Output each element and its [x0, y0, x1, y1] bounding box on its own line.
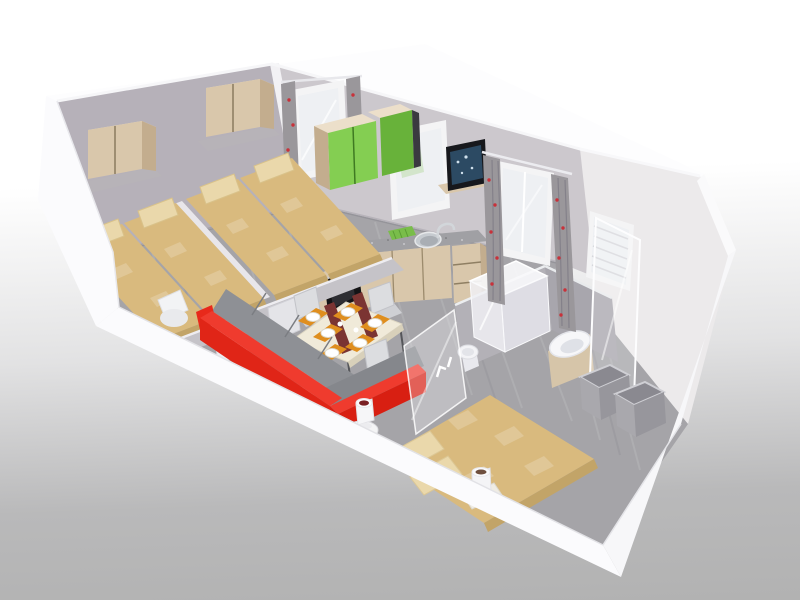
cup-drink [476, 470, 487, 475]
cabinet-side [142, 121, 156, 171]
cabinet-side [314, 126, 330, 190]
armchair-seat [160, 309, 188, 327]
cabinet-side [260, 79, 274, 129]
tv-screen [450, 145, 483, 185]
floorplan-render [0, 0, 800, 600]
render-canvas [0, 0, 800, 600]
toilet-seat [462, 348, 474, 356]
cabinet-door-green-2 [380, 110, 414, 176]
table-cup [338, 322, 343, 327]
glass-wine [359, 400, 369, 405]
table-cup [354, 328, 359, 333]
